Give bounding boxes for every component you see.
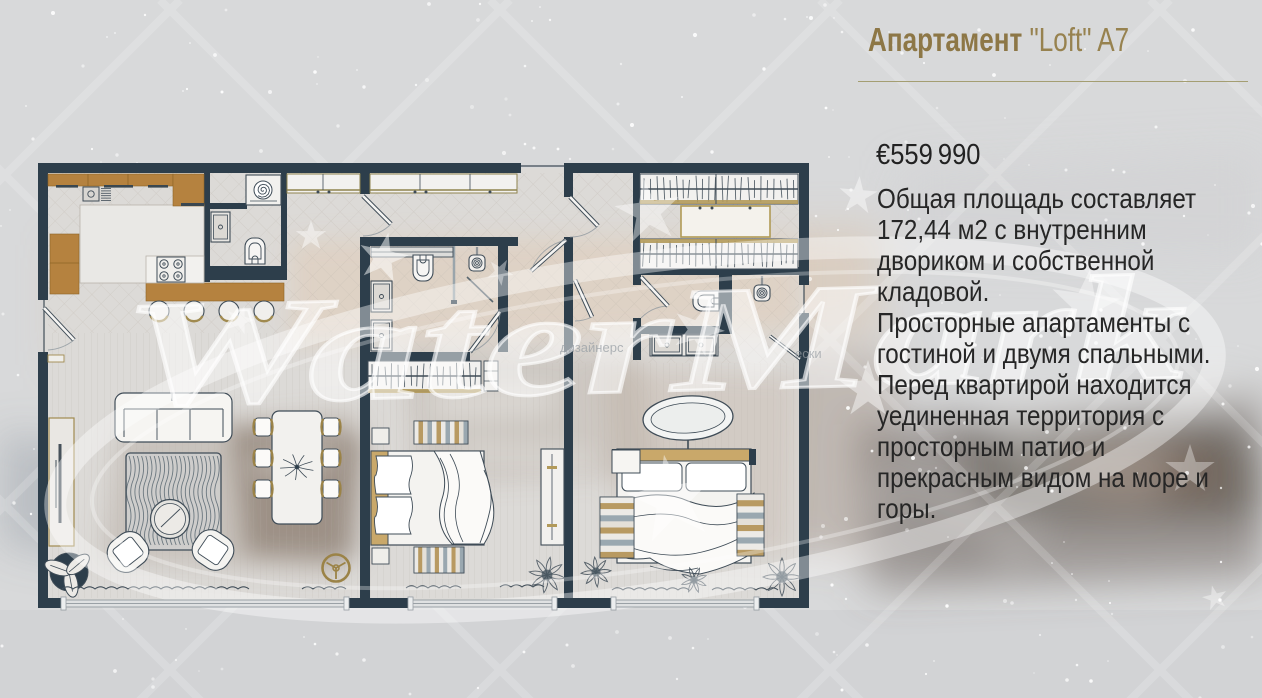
svg-text:дизайнерс: дизайнерс [560, 340, 624, 355]
svg-text:ески: ески [795, 346, 822, 361]
